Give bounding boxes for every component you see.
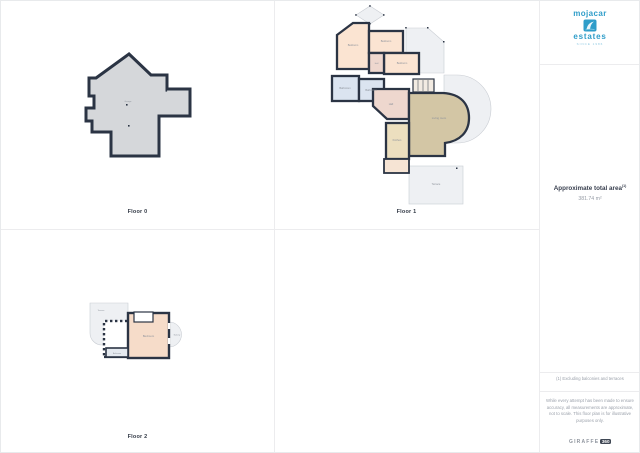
total-area-title-text: Approximate total area [554, 185, 622, 192]
room-label: Hall [375, 63, 379, 65]
room-label: Bedroom [381, 39, 392, 43]
floor0-room-label: Garage [125, 100, 133, 103]
giraffe360-text: GIRAFFE [569, 439, 599, 445]
sidebar-divider [539, 391, 640, 392]
logo-tagline: since 1986 [539, 43, 640, 46]
footnote-marker: (1) [622, 184, 626, 188]
logo-name: mojacar [539, 10, 640, 18]
sidebar-divider [539, 372, 640, 373]
floor2-stairwell-shape [134, 312, 153, 322]
room-label: Bathroom [113, 352, 122, 355]
floorplan-sheet: Garage [0, 0, 640, 453]
room-label: Terrace [432, 182, 441, 186]
disclaimer-text: While every attempt has been made to ens… [544, 398, 636, 425]
agency-logo: mojacar estates since 1986 [539, 10, 640, 46]
room-label: Balcony [174, 335, 180, 337]
room-label: Hall [389, 102, 394, 106]
sidebar-divider [539, 64, 640, 65]
vertical-divider [274, 1, 275, 453]
floor2-plan: Terrace Bedroom Bathroom Balcony [76, 291, 206, 381]
roof-diamond-terrace [356, 6, 384, 24]
room-label: Bedroom [348, 43, 359, 47]
window-gap [168, 323, 170, 329]
window-gap [168, 338, 170, 344]
utility-shape [384, 159, 409, 173]
area-footnote: (1) Excluding balconies and terraces [539, 376, 640, 381]
wave-icon [583, 19, 597, 32]
floor0-outline [86, 54, 190, 156]
stairs-shape [413, 79, 434, 92]
floor1-plan: Bedroom Bedroom Bedroom Hall Bathroom Ba… [326, 1, 501, 216]
total-area-block: Approximate total area(1) 381.74 m² [539, 184, 640, 202]
room-label: Bedroom [397, 61, 408, 65]
floor0-caption: Floor 0 [1, 209, 274, 215]
room-label: Terrace [98, 309, 106, 312]
floor0-plan: Garage [61, 31, 241, 221]
room-label: Kitchen [393, 138, 402, 142]
floor2-caption: Floor 2 [1, 434, 274, 440]
room-label: Living room [432, 116, 447, 120]
giraffe360-logo: GIRAFFE360 [539, 430, 640, 448]
room-label: Bathroom [339, 86, 350, 90]
room-label: Bathroom [365, 88, 376, 92]
floor1-caption: Floor 1 [274, 209, 539, 215]
vertical-divider [539, 1, 540, 453]
total-area-value: 381.74 m² [539, 196, 640, 202]
logo-subtitle: estates [539, 33, 640, 41]
room-label: Bedroom [143, 334, 155, 338]
living-room-shape [409, 93, 469, 156]
horizontal-divider [1, 229, 539, 230]
giraffe360-badge: 360 [600, 439, 611, 444]
total-area-title: Approximate total area(1) [539, 184, 640, 192]
